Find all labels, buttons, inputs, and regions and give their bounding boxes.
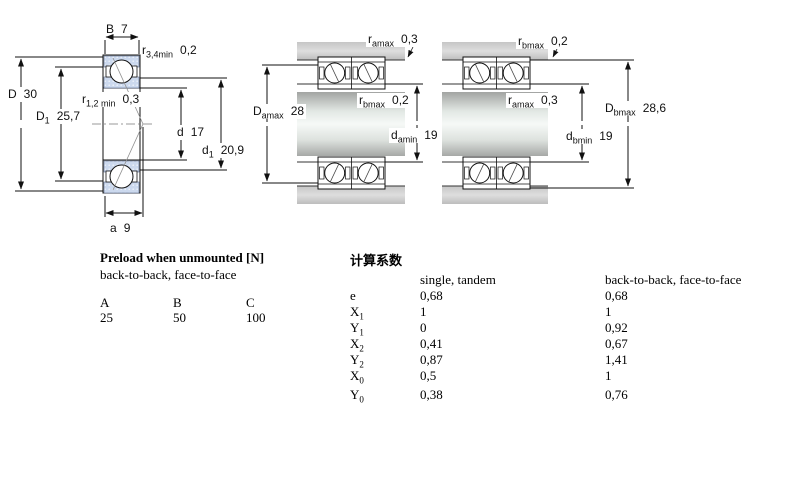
- r-leader: [408, 47, 413, 57]
- middle-duplex-diagram: [262, 42, 423, 204]
- bearing-pair-bottom: [463, 157, 530, 189]
- dim-label-rbmax-right: rbmax0,2: [516, 34, 570, 49]
- factors-rows: e0,680,68 X111 Y100,92 X20,410,67 Y20,87…: [350, 288, 780, 403]
- dim-label-dbmin: dbmin19: [564, 129, 615, 144]
- table-row: X00,51: [350, 368, 780, 384]
- dim-label-d: d17: [175, 125, 206, 140]
- dim-label-D1: D125,7: [34, 109, 82, 124]
- dim-label-D: D30: [6, 87, 39, 102]
- dim-label-a: a9: [110, 221, 130, 236]
- preload-val-b: 50: [173, 310, 246, 326]
- dim-label-d1: d120,9: [200, 143, 246, 158]
- table-row: Y20,871,41: [350, 352, 780, 368]
- preload-subtitle: back-to-back, face-to-face: [100, 267, 236, 283]
- preload-val-a: 25: [100, 310, 173, 326]
- bearing-section-bottom: [103, 160, 140, 193]
- table-row: e0,680,68: [350, 288, 780, 304]
- dim-label-Damax: Damax28: [251, 104, 306, 119]
- calculation-factors-table: 计算系数 single, tandem back-to-back, face-t…: [350, 250, 780, 410]
- factors-title: 计算系数: [350, 250, 402, 269]
- dim-label-ramax-right: ramax0,3: [506, 93, 560, 108]
- bearing-datasheet-page: B7 r3,4min0,2 D30 D125,7 r1,2 min0,3 d17…: [0, 0, 800, 500]
- table-row: X20,410,67: [350, 336, 780, 352]
- bearing-pair-top: [318, 57, 385, 89]
- preload-value-row: 2550100: [100, 310, 319, 326]
- right-duplex-diagram: [442, 42, 634, 204]
- table-row: Y00,380,76: [350, 387, 780, 403]
- preload-col-a: A: [100, 295, 173, 311]
- preload-header-row: ABC: [100, 295, 319, 311]
- dim-label-r12min: r1,2 min0,3: [80, 92, 141, 107]
- bearing-pair-top: [463, 57, 530, 89]
- ball: [110, 60, 133, 83]
- dim-label-ramax-mid: ramax0,3: [366, 32, 420, 47]
- dim-B: [105, 37, 139, 54]
- preload-col-c: C: [246, 295, 319, 311]
- dim-label-damin: damin19: [389, 128, 440, 143]
- ball: [110, 165, 133, 188]
- dim-label-rbmax-mid: rbmax0,2: [357, 93, 411, 108]
- bearing-section-top: [103, 55, 140, 88]
- dim-label-B: B7: [106, 22, 128, 37]
- preload-col-b: B: [173, 295, 246, 311]
- dim-label-Dbmax: Dbmax28,6: [603, 101, 668, 116]
- bearing-pair-bottom: [318, 157, 385, 189]
- preload-val-c: 100: [246, 310, 319, 326]
- factors-col1-header: single, tandem: [420, 272, 496, 288]
- preload-title: Preload when unmounted [N]: [100, 250, 264, 266]
- preload-table: Preload when unmounted [N] back-to-back,…: [100, 250, 380, 330]
- dim-label-r34min: r3,4min0,2: [142, 43, 197, 58]
- table-row: X111: [350, 304, 780, 320]
- table-row: Y100,92: [350, 320, 780, 336]
- factors-col2-header: back-to-back, face-to-face: [605, 272, 741, 288]
